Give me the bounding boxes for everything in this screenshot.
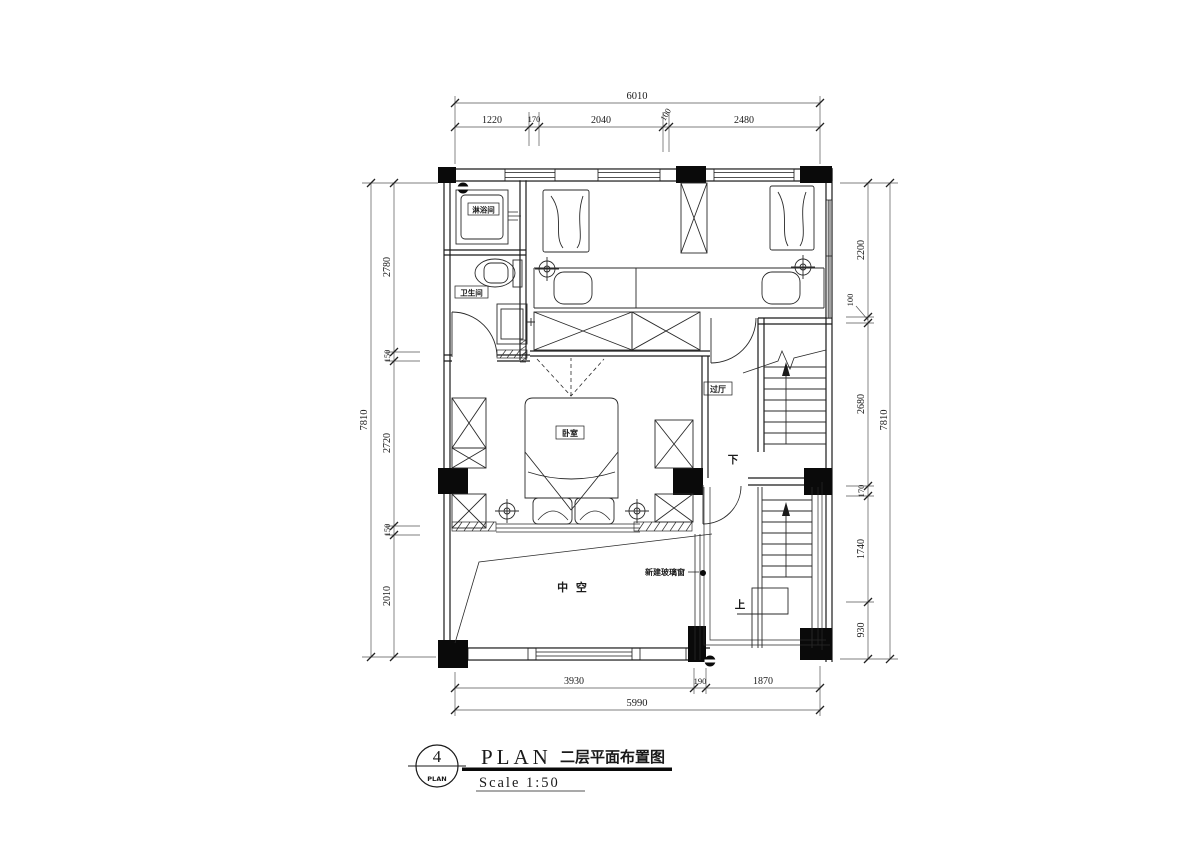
label-bathroom: 卫生间: [460, 288, 483, 298]
dim-top-seg-0: 1220: [482, 115, 502, 126]
dim-right-seg-5: 930: [856, 623, 867, 638]
label-stair-up: 上: [735, 598, 746, 611]
label-hall: 过厅: [710, 384, 726, 394]
label-void: 中 空: [557, 580, 589, 594]
bed-single-left: [543, 190, 589, 252]
ceiling-projection-dashed: [537, 358, 604, 396]
title-cn: 二层平面布置图: [560, 748, 665, 766]
hall-door: [703, 485, 741, 524]
dimensions: [362, 96, 898, 716]
floor-plan-drawing: 6010 1220 170 2040 100 2480 3930 190 187…: [0, 0, 1200, 859]
light-symbol-3: [495, 499, 519, 523]
title-circle-label: PLAN: [427, 775, 446, 783]
dim-bottom-seg-0: 3930: [564, 676, 584, 687]
light-symbol-4: [625, 499, 649, 523]
toilet: [475, 259, 522, 287]
dim-right-seg-3: 170: [856, 485, 866, 498]
wardrobe-left: [452, 398, 486, 528]
dim-right-seg-2: 2680: [856, 394, 867, 414]
void-area: [455, 534, 712, 660]
master-bed: [525, 398, 618, 524]
windows: [468, 169, 832, 660]
title-en: PLAN: [481, 745, 552, 769]
column-xbox: [681, 183, 707, 253]
structural-columns: [438, 166, 832, 668]
bathroom-door: [452, 312, 497, 357]
title-circle-number: 4: [433, 747, 442, 766]
label-bedroom: 卧室: [562, 428, 578, 438]
dimension-ticks: [367, 99, 894, 714]
dim-right-seg-1: 100: [845, 294, 855, 307]
level-symbol-bottom: [705, 656, 716, 667]
title-scale: Scale 1:50: [479, 775, 560, 791]
title-block: 4 PLAN PLAN 二层平面布置图 Scale 1:50: [408, 745, 672, 791]
stair-arrow-head: [782, 362, 790, 376]
desk-chair-left: [554, 272, 592, 304]
vanity-sink: [497, 304, 535, 344]
dim-left-seg-2: 2720: [382, 433, 393, 453]
wardrobe-upper: [534, 312, 700, 350]
dim-left-seg-4: 2010: [382, 586, 393, 606]
shower-tray: [456, 190, 508, 244]
dim-top-seg-3: 100: [658, 106, 673, 122]
desk-chair-right: [762, 272, 800, 304]
dim-right-total: 7810: [879, 410, 890, 431]
desk-counter: [534, 268, 824, 308]
dim-top-seg-4: 2480: [734, 115, 754, 126]
label-annotation: 新建玻璃窗: [645, 567, 685, 577]
annotation-dot: [700, 570, 706, 576]
label-shower: 淋浴间: [472, 205, 495, 215]
level-symbol-top: [458, 183, 469, 194]
dim-left-total: 7810: [359, 410, 370, 431]
dim-bottom-seg-2: 1870: [753, 676, 773, 687]
dim-right-seg-0: 2200: [856, 240, 867, 260]
threshold: [496, 524, 640, 532]
dim-right-seg-4: 1740: [856, 539, 867, 559]
light-symbol-2: [791, 255, 815, 279]
floor-plan-canvas: 6010 1220 170 2040 100 2480 3930 190 187…: [0, 0, 1200, 859]
dim-left-seg-1: 150: [382, 350, 392, 363]
bed-single-right: [770, 186, 814, 250]
bedroom-door: [711, 318, 756, 363]
dim-left-seg-3: 150: [382, 524, 392, 537]
dim-top-total: 6010: [627, 91, 648, 102]
dim-bottom-total: 5990: [627, 698, 648, 709]
stairs-lower: [704, 482, 830, 650]
dim-bottom-seg-1: 190: [694, 676, 707, 686]
label-stair-down: 下: [728, 454, 739, 466]
dim-top-seg-1: 170: [528, 114, 541, 124]
dim-top-seg-2: 2040: [591, 115, 611, 126]
dim-left-seg-0: 2780: [382, 257, 393, 277]
